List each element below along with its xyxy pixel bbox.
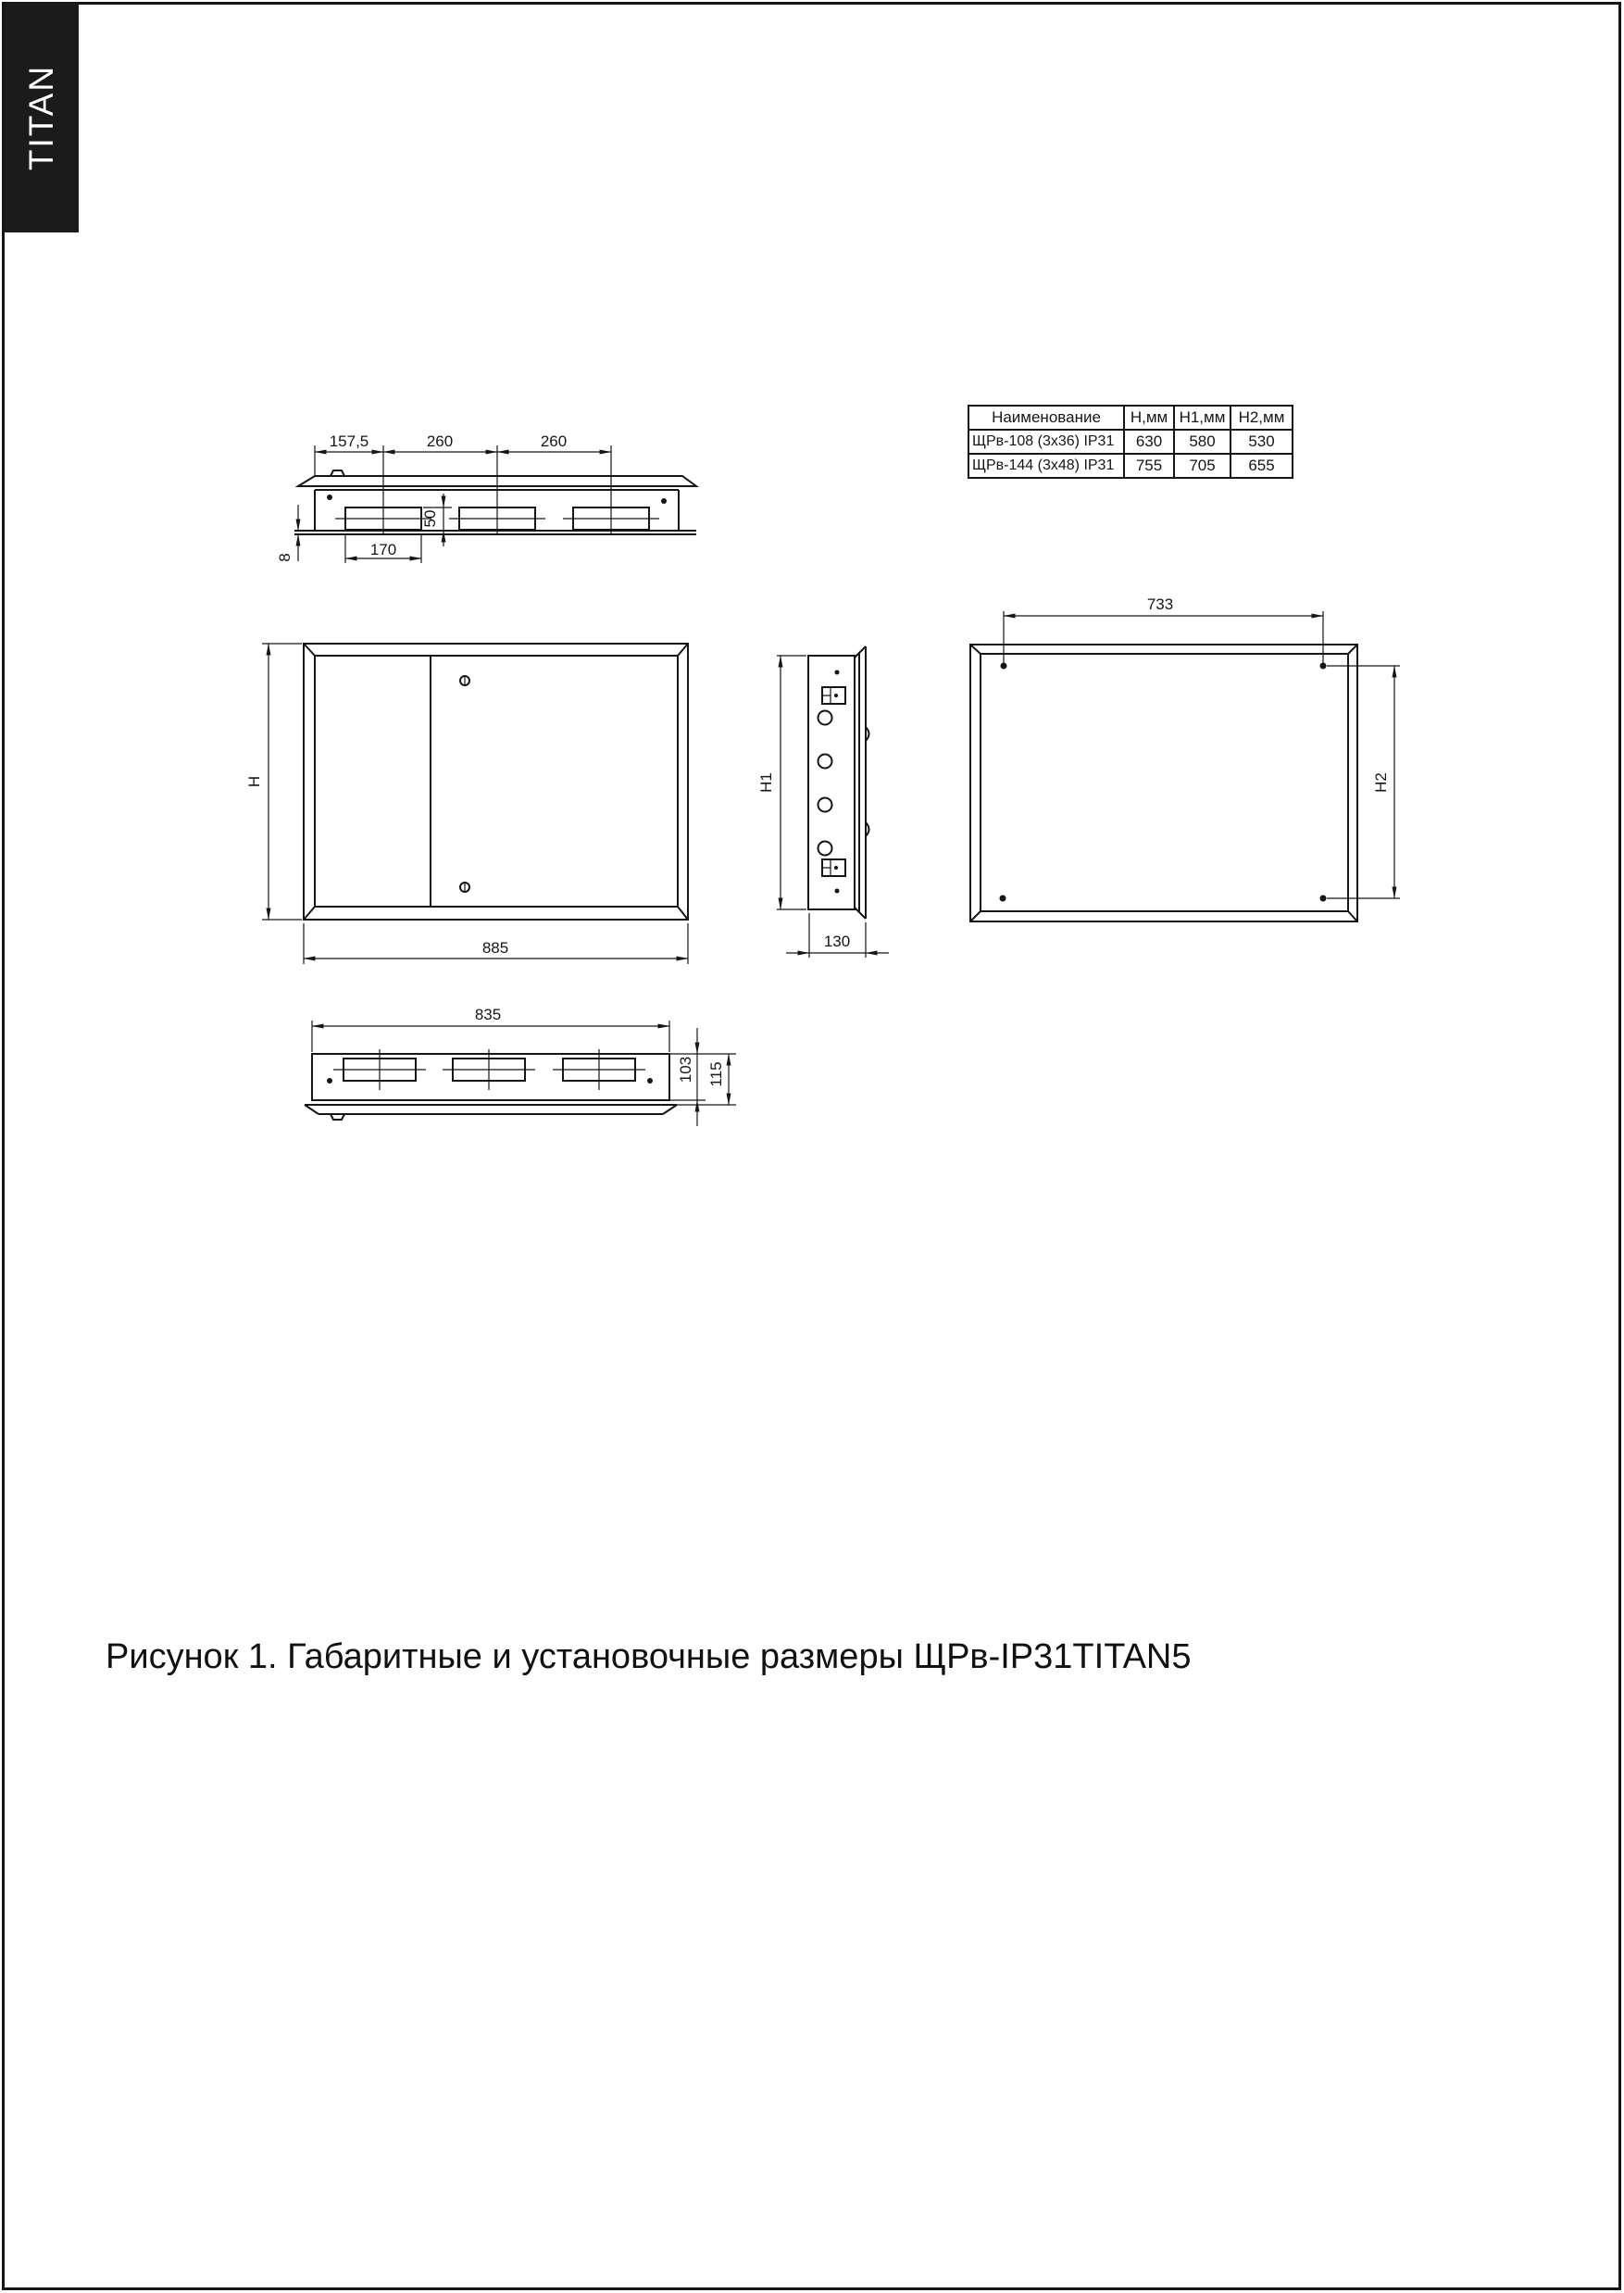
dim-height-label: H: [245, 776, 263, 787]
dim-total-depth-label: 115: [707, 1061, 725, 1086]
dim-knockout-width-label: 170: [370, 541, 396, 558]
dim-mount-width-label: 733: [1147, 595, 1173, 613]
figure-caption: Рисунок 1. Габаритные и установочные раз…: [106, 1637, 1192, 1677]
dim-knockout-height-label: 50: [421, 510, 439, 528]
front-view: H 885: [245, 644, 688, 964]
side-view: H1 130: [757, 646, 889, 958]
dim-bottom-width-label: 835: [475, 1006, 501, 1023]
dim-left-offset-label: 157,5: [330, 432, 369, 450]
dim-h2-label: H2: [1372, 772, 1390, 793]
dim-pitch1-label: 260: [427, 432, 453, 450]
dim-width-label: 885: [482, 939, 508, 957]
top-view: 157,5 260 260 170 50 8: [276, 432, 696, 563]
technical-drawing: 157,5 260 260 170 50 8 H 885: [0, 0, 1624, 2293]
dim-lip-label: 8: [276, 553, 294, 561]
dim-body-depth-label: 103: [677, 1057, 694, 1083]
dim-h1-label: H1: [757, 772, 775, 793]
bottom-view: 835 103 115: [305, 1006, 736, 1126]
dim-pitch2-label: 260: [541, 432, 567, 450]
dim-depth-label: 130: [824, 933, 850, 950]
datasheet-page: TITAN Наименование H,мм H1,мм H2,мм ЩРв-…: [0, 0, 1624, 2293]
rear-view: 733 H2: [970, 595, 1400, 921]
